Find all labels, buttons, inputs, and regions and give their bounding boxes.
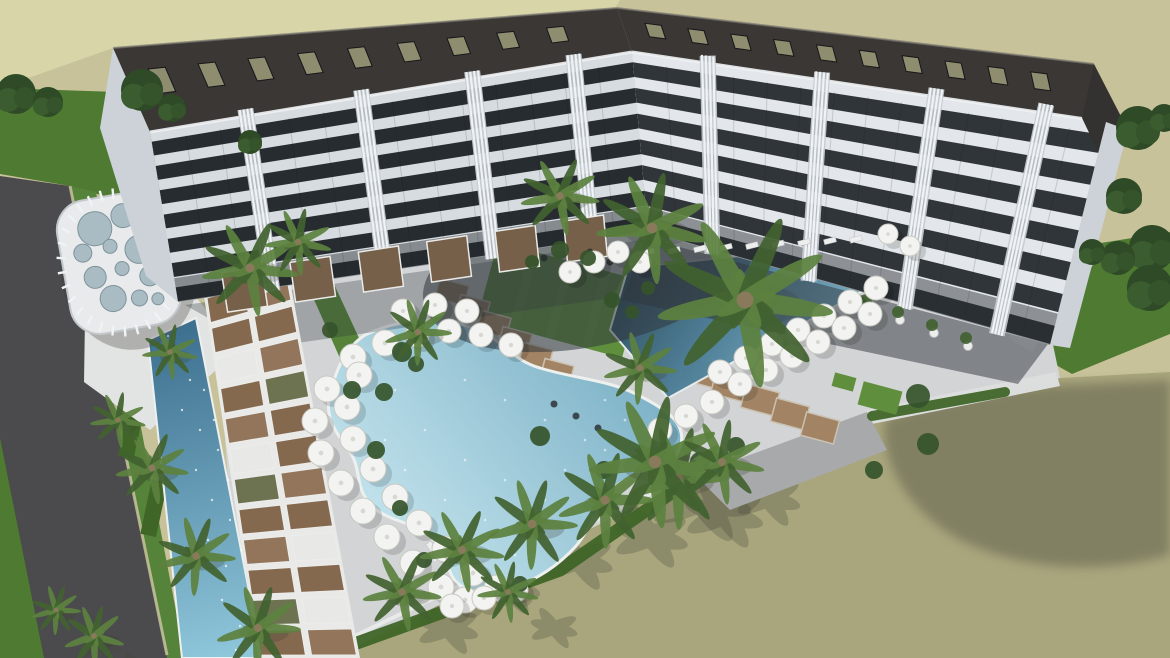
pergola-panel: [243, 536, 290, 564]
water-sparkle: [195, 469, 197, 471]
umbrella-pole: [325, 387, 330, 392]
umbrella-pole: [886, 232, 890, 236]
tree-canopy: [1116, 252, 1135, 271]
water-sparkle: [624, 419, 627, 422]
umbrella-pole: [433, 303, 437, 307]
umbrella-pole: [439, 585, 444, 590]
tree-canopy: [14, 87, 36, 109]
terrace-pergola: [427, 236, 472, 282]
umbrella-pole: [684, 414, 688, 418]
water-sparkle: [464, 379, 467, 382]
water-sparkle: [217, 449, 219, 451]
pergola-panel: [281, 467, 327, 498]
tree: [1106, 178, 1142, 214]
umbrella-pole: [357, 373, 362, 378]
pergola-panel: [234, 474, 279, 504]
shrub: [392, 500, 408, 516]
shrub: [367, 441, 385, 459]
pergola-panel: [239, 505, 285, 534]
palm-crown: [600, 495, 609, 504]
tree: [33, 87, 63, 117]
shrub: [375, 383, 393, 401]
water-sparkle: [604, 399, 607, 402]
palm-crown: [649, 456, 662, 469]
umbrella-pole: [361, 509, 366, 514]
palm-crown: [91, 633, 97, 639]
pot-plant: [892, 306, 904, 318]
palm-crown: [458, 546, 466, 554]
pergola-panel: [307, 629, 356, 655]
tree-canopy: [249, 138, 262, 151]
umbrella-pole: [868, 312, 872, 316]
water-sparkle: [504, 479, 507, 482]
umbrella-pole: [764, 368, 768, 372]
cafe-table: [551, 401, 558, 408]
palm-crown: [167, 349, 172, 354]
palm-crown: [737, 292, 754, 309]
water-sparkle: [211, 499, 213, 501]
umbrella-pole: [339, 481, 344, 486]
water-sparkle: [199, 429, 201, 431]
umbrella-pole: [568, 270, 572, 274]
cafe-table: [573, 413, 580, 420]
shrub: [906, 384, 930, 408]
umbrella-pole: [345, 405, 350, 410]
water-sparkle: [514, 554, 517, 557]
tree-canopy: [47, 97, 64, 114]
pergola-panel: [297, 564, 345, 592]
palm-crown: [254, 624, 262, 632]
water-sparkle: [207, 539, 209, 541]
water-sparkle: [484, 519, 487, 522]
tree: [121, 69, 163, 111]
umbrella-pole: [319, 451, 324, 456]
umbrella-pole: [465, 309, 469, 313]
palm-crown: [505, 589, 511, 595]
umbrella-pole: [842, 326, 846, 330]
umbrella-pole: [848, 300, 852, 304]
umbrella-pole: [718, 370, 722, 374]
umbrella-pole: [401, 309, 405, 313]
water-sparkle: [404, 469, 407, 472]
water-sparkle: [384, 439, 387, 442]
umbrella-pole: [509, 343, 513, 347]
shrub: [917, 433, 939, 455]
water-sparkle: [434, 559, 437, 562]
water-sparkle: [464, 459, 467, 462]
shrub: [322, 322, 338, 338]
shrub: [604, 292, 620, 308]
shrub: [580, 250, 596, 266]
water-sparkle: [189, 379, 191, 381]
spa-fin: [58, 272, 67, 274]
shrub: [641, 281, 655, 295]
water-sparkle: [604, 449, 607, 452]
umbrella-pole: [738, 382, 742, 386]
umbrella-pole: [393, 495, 398, 500]
umbrella-pole: [313, 419, 318, 424]
shrub: [625, 305, 639, 319]
umbrella-pole: [351, 355, 356, 360]
pergola-panel: [286, 500, 332, 530]
resort-aerial-render: [0, 0, 1170, 658]
umbrella-pole: [816, 340, 820, 344]
umbrella-pole: [351, 437, 356, 442]
palm-crown: [245, 263, 254, 272]
shrub: [865, 461, 883, 479]
palm-crown: [415, 329, 421, 335]
water-sparkle: [424, 429, 427, 432]
water-sparkle: [584, 439, 587, 442]
umbrella-pole: [770, 342, 774, 346]
palm-crown: [528, 520, 537, 529]
shrub: [343, 381, 361, 399]
water-sparkle: [225, 565, 227, 567]
water-sparkle: [444, 499, 447, 502]
water-sparkle: [394, 389, 397, 392]
water-sparkle: [203, 389, 205, 391]
water-sparkle: [181, 409, 183, 411]
umbrella-pole: [450, 604, 454, 608]
tree: [158, 94, 186, 122]
palm-crown: [637, 365, 644, 372]
umbrella-pole: [471, 571, 476, 576]
room-divider: [734, 76, 735, 250]
tree: [1079, 239, 1105, 265]
water-sparkle: [564, 469, 567, 472]
umbrella-pole: [908, 244, 912, 248]
palm-crown: [295, 239, 301, 245]
umbrella-pole: [371, 467, 376, 472]
umbrella-pole: [616, 250, 620, 254]
palm-crown: [54, 608, 59, 613]
umbrella-pole: [710, 400, 714, 404]
water-sparkle: [227, 479, 229, 481]
palm-crown: [647, 223, 658, 234]
shrub: [551, 241, 569, 259]
palm-crown: [115, 417, 120, 422]
palm-crown: [398, 588, 406, 596]
water-sparkle: [544, 419, 547, 422]
palm-crown: [718, 458, 726, 466]
umbrella-pole: [874, 286, 878, 290]
tree-canopy: [1091, 247, 1105, 261]
umbrella-pole: [479, 333, 483, 337]
water-sparkle: [229, 519, 231, 521]
tree: [1101, 241, 1135, 275]
tree-canopy: [1122, 190, 1142, 210]
cafe-table: [541, 255, 548, 262]
render-stage: [0, 0, 1170, 658]
water-sparkle: [221, 599, 223, 601]
water-sparkle: [239, 625, 241, 627]
water-sparkle: [213, 419, 215, 421]
umbrella-pole: [417, 521, 422, 526]
water-sparkle: [504, 399, 507, 402]
tree: [238, 130, 262, 154]
pot-plant: [926, 319, 938, 331]
pergola-panel: [302, 597, 350, 624]
palm-crown: [556, 192, 564, 200]
umbrella-pole: [385, 535, 390, 540]
umbrella-pole: [796, 328, 800, 332]
tree-canopy: [171, 103, 186, 118]
pot-plant: [960, 332, 972, 344]
pergola-panel: [291, 532, 338, 561]
palm-crown: [192, 552, 200, 560]
terrace-pergola: [358, 246, 403, 292]
shrub: [530, 426, 550, 446]
shrub: [525, 255, 539, 269]
palm-crown: [149, 465, 156, 472]
